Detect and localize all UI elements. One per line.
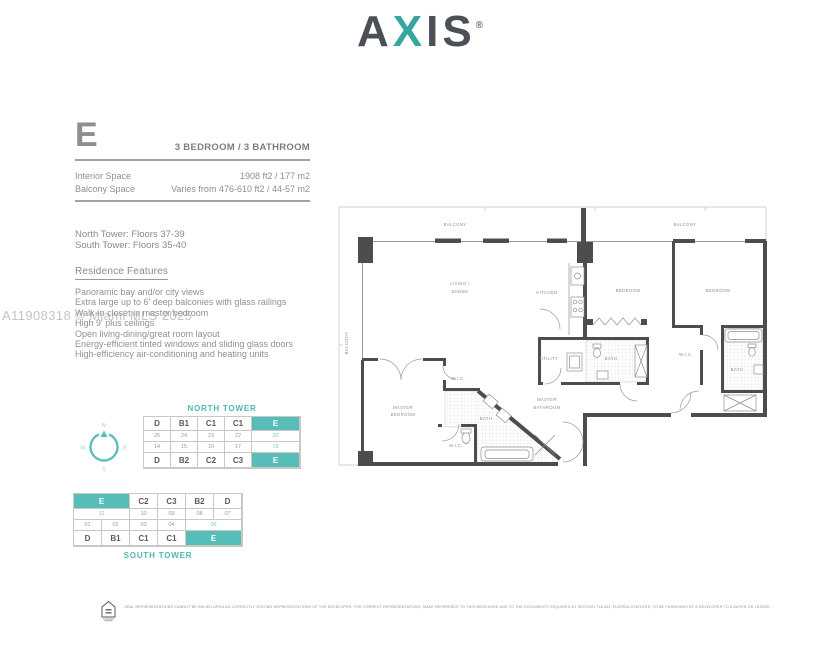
unit-cell: C1	[198, 417, 225, 431]
room-label-kitchen: KITCHEN	[536, 290, 557, 295]
unit-number-cell: 17	[225, 442, 252, 453]
south-tower-grid: E C2 C3 B2 D 12 10 09 08 07 01 02 03 04 …	[73, 493, 243, 547]
unit-number-cell: 14	[144, 442, 171, 453]
unit-cell: C3	[225, 453, 252, 468]
unit-cell: D	[214, 494, 242, 509]
unit-cell: C1	[225, 417, 252, 431]
balcony-outline	[339, 207, 766, 465]
unit-number-cell-highlighted: 20	[252, 431, 300, 442]
unit-cell: D	[74, 531, 102, 546]
compass-icon: N E S W	[76, 418, 132, 474]
closet-rod	[593, 318, 641, 325]
spec-label: Interior Space	[75, 171, 131, 181]
room-label-wic: W.I.C.	[679, 352, 693, 357]
unit-number-cell: 16	[198, 442, 225, 453]
north-tower-grid: D B1 C1 C1 E 25 24 23 22 20 14 15 16 17 …	[143, 416, 301, 469]
unit-number-cell: 15	[171, 442, 198, 453]
footer: ORAL REPRESENTATIONS CANNOT BE RELIED UP…	[100, 598, 771, 622]
north-tower-title: NORTH TOWER	[143, 404, 301, 413]
room-label-bath: BATH	[480, 416, 492, 421]
walls	[358, 208, 767, 466]
spec-value: 1908 ft2 / 177 m2	[240, 171, 310, 181]
feature-item: Open living-dining/great room layout	[75, 329, 293, 339]
floorplan: BALCONY BALCONY BALCONY LIVING / DINING …	[335, 195, 775, 485]
room-label-bath: BATH	[605, 356, 617, 361]
unit-number-cell: 07	[214, 509, 242, 520]
unit-cell: B2	[186, 494, 214, 509]
feature-item: Energy-efficient tinted windows and slid…	[75, 339, 293, 349]
room-label-dining: DINING	[451, 289, 468, 294]
south-tower-table: E C2 C3 B2 D 12 10 09 08 07 01 02 03 04 …	[73, 493, 243, 560]
unit-letter: E	[75, 118, 98, 152]
tiled-floors	[445, 328, 763, 463]
registered-mark: ®	[476, 20, 483, 31]
features-list: Panoramic bay and/or city views Extra la…	[75, 287, 293, 360]
feature-item: Panoramic bay and/or city views	[75, 287, 293, 297]
unit-number-cell: 01	[74, 520, 102, 531]
compass-w: W	[80, 446, 86, 452]
south-tower-title: SOUTH TOWER	[73, 551, 243, 560]
mls-watermark: A11908318 © Miami MLS 2025	[2, 308, 192, 323]
unit-cell-highlighted: E	[252, 453, 300, 468]
unit-number-cell: 25	[144, 431, 171, 442]
room-label-balcony: BALCONY	[444, 222, 467, 227]
unit-number-cell: 09	[158, 509, 186, 520]
unit-cell: C2	[130, 494, 158, 509]
unit-number-cell-highlighted: 06	[186, 520, 242, 531]
unit-number-cell: 22	[225, 431, 252, 442]
unit-cell-highlighted: E	[186, 531, 242, 546]
unit-number-cell-highlighted: 12	[74, 509, 130, 520]
room-label-wic: W.I.C.	[451, 376, 465, 381]
logo-letters-is: IS	[426, 7, 476, 56]
divider-line	[75, 200, 310, 202]
unit-number-cell: 23	[198, 431, 225, 442]
unit-cell: C1	[130, 531, 158, 546]
unit-type: 3 BEDROOM / 3 BATHROOM	[140, 142, 310, 153]
unit-cell-highlighted: E	[74, 494, 130, 509]
unit-cell: D	[144, 417, 171, 431]
feature-item: Extra large up to 6' deep balconies with…	[75, 297, 293, 307]
unit-cell: B1	[102, 531, 130, 546]
room-label-balcony: BALCONY	[674, 222, 697, 227]
north-tower-floors: North Tower: Floors 37-39	[75, 230, 186, 241]
unit-cell: B1	[171, 417, 198, 431]
compass-e: E	[123, 446, 127, 452]
room-label-living: LIVING /	[450, 281, 470, 286]
room-label-bedroom: BEDROOM	[706, 288, 731, 293]
compass-s: S	[102, 467, 106, 473]
room-label-utility: UTILITY	[540, 356, 558, 361]
compass-n: N	[102, 423, 106, 429]
room-label-balcony: BALCONY	[344, 332, 349, 355]
logo-letter-a: A	[357, 7, 393, 56]
logo-letter-x: X	[393, 7, 426, 56]
unit-cell: B2	[171, 453, 198, 468]
axis-logo: AXIS®	[0, 10, 840, 54]
features-heading: Residence Features	[75, 266, 168, 280]
spec-table: Interior Space 1908 ft2 / 177 m2 Balcony…	[75, 169, 310, 195]
footer-disclaimer: ORAL REPRESENTATIONS CANNOT BE RELIED UP…	[124, 605, 771, 609]
room-label-master-bedroom: MASTER	[393, 405, 413, 410]
equal-housing-icon	[100, 598, 117, 622]
unit-number-cell: 08	[186, 509, 214, 520]
unit-number-cell: 02	[102, 520, 130, 531]
unit-number-cell: 04	[158, 520, 186, 531]
spec-value: Varies from 476-610 ft2 / 44-57 m2	[171, 184, 310, 194]
north-tower-table: NORTH TOWER D B1 C1 C1 E 25 24 23 22 20 …	[143, 404, 301, 469]
room-label-bath: BATH	[731, 367, 743, 372]
unit-cell: C1	[158, 531, 186, 546]
spec-label: Balcony Space	[75, 184, 135, 194]
unit-number-cell: 10	[130, 509, 158, 520]
room-label-master-bathroom: MASTER	[537, 397, 557, 402]
unit-cell-highlighted: E	[252, 417, 300, 431]
unit-cell: C2	[198, 453, 225, 468]
unit-number-cell: 03	[130, 520, 158, 531]
brochure-page: AXIS® E 3 BEDROOM / 3 BATHROOM Interior …	[0, 0, 840, 649]
divider-line	[75, 159, 310, 161]
room-label-master-bathroom: BATHROOM	[533, 405, 560, 410]
feature-item: High-efficiency air-conditioning and hea…	[75, 349, 293, 359]
unit-cell: C3	[158, 494, 186, 509]
unit-number-cell: 24	[171, 431, 198, 442]
spec-row-interior: Interior Space 1908 ft2 / 177 m2	[75, 169, 310, 182]
glass-walls	[362, 241, 766, 361]
spec-row-balcony: Balcony Space Varies from 476-610 ft2 / …	[75, 182, 310, 195]
unit-number-cell-highlighted: 19	[252, 442, 300, 453]
unit-cell: D	[144, 453, 171, 468]
room-label-wic: W.I.C.	[449, 443, 463, 448]
tower-floors: North Tower: Floors 37-39 South Tower: F…	[75, 230, 186, 251]
room-label-master-bedroom: BEDROOM	[391, 412, 416, 417]
south-tower-floors: South Tower: Floors 35-40	[75, 241, 186, 252]
door-arcs	[380, 309, 718, 462]
room-label-bedroom: BEDROOM	[616, 288, 641, 293]
